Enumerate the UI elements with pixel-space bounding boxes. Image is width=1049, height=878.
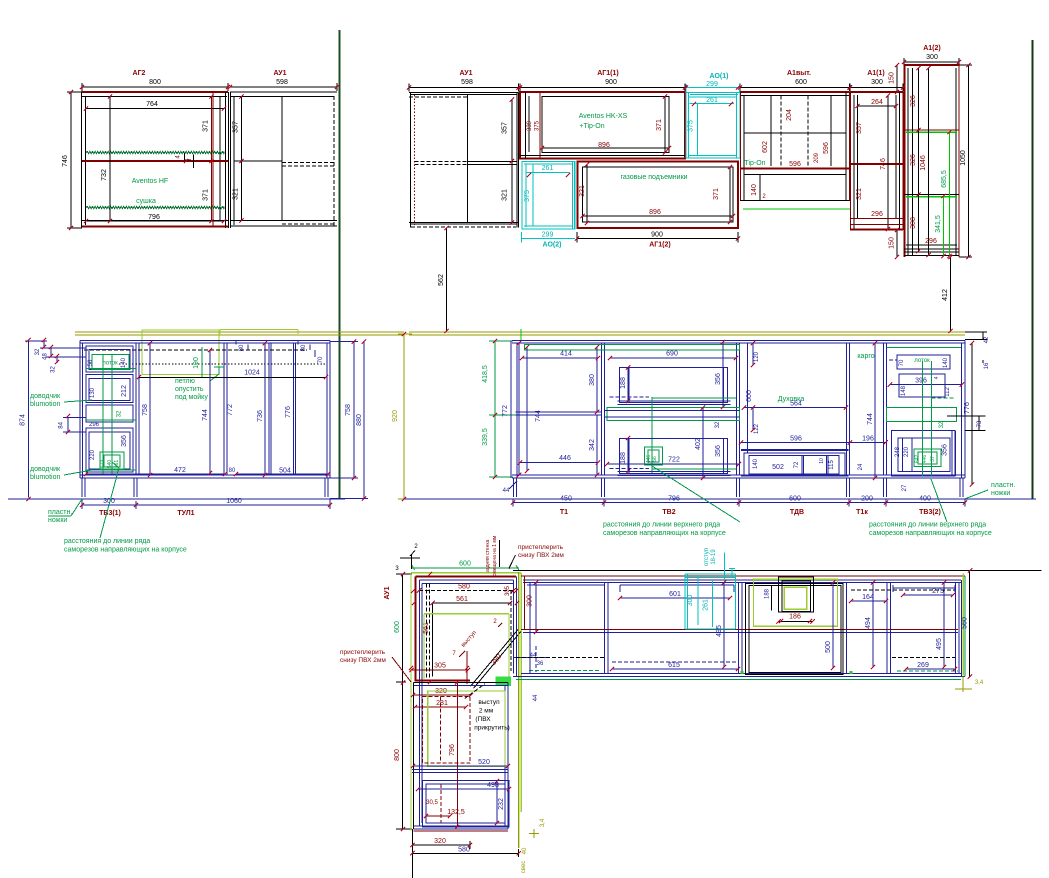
svg-text:494: 494 [865, 617, 872, 629]
svg-text:АГ2: АГ2 [133, 70, 146, 77]
svg-text:212: 212 [121, 385, 128, 397]
svg-text:186: 186 [789, 614, 801, 621]
svg-text:80: 80 [229, 468, 236, 474]
svg-text:396: 396 [915, 378, 927, 385]
svg-text:80: 80 [239, 344, 245, 351]
svg-text:А1(1): А1(1) [867, 70, 885, 77]
svg-text:495: 495 [716, 625, 723, 637]
svg-text:140: 140 [943, 357, 949, 368]
svg-text:Aventos HK-XS: Aventos HK-XS [579, 113, 628, 120]
svg-text:Tip-On: Tip-On [744, 160, 765, 167]
svg-text:732: 732 [101, 169, 108, 181]
svg-text:601: 601 [669, 591, 681, 598]
svg-text:80: 80 [301, 344, 307, 351]
svg-text:561: 561 [456, 596, 468, 603]
svg-text:42: 42 [984, 336, 990, 343]
svg-text:744: 744 [535, 410, 542, 422]
svg-text:расстояния до линии верхнего р: расстояния до линии верхнего ряда [869, 522, 986, 529]
svg-text:308: 308 [910, 217, 917, 229]
svg-text:472: 472 [174, 467, 186, 474]
svg-text:400: 400 [919, 496, 931, 503]
svg-text:296: 296 [871, 211, 883, 218]
svg-text:418,5: 418,5 [482, 365, 489, 383]
svg-text:3,4: 3,4 [975, 680, 984, 686]
svg-text:371: 371 [713, 188, 720, 200]
svg-text:339,5: 339,5 [482, 428, 489, 446]
svg-text:164: 164 [862, 594, 874, 601]
svg-text:920: 920 [392, 410, 399, 422]
svg-text:900: 900 [651, 232, 663, 239]
svg-text:пристеплерить: пристеплерить [518, 544, 564, 551]
svg-text:АО(2): АО(2) [543, 242, 562, 249]
svg-text:пристеплерить: пристеплерить [340, 649, 386, 656]
svg-text:пластн.: пластн. [991, 482, 1015, 489]
svg-text:2: 2 [762, 194, 766, 200]
svg-text:140: 140 [753, 458, 759, 469]
svg-text:261: 261 [542, 165, 554, 172]
svg-text:задняя стенка: задняя стенка [485, 539, 491, 572]
svg-text:874: 874 [20, 414, 27, 426]
svg-text:188: 188 [764, 588, 770, 599]
svg-text:414: 414 [560, 351, 572, 358]
svg-text:2: 2 [414, 544, 418, 550]
svg-text:сушка: сушка [136, 198, 156, 205]
svg-text:16: 16 [984, 362, 990, 369]
svg-text:44: 44 [503, 488, 510, 494]
svg-text:газовые подъемники: газовые подъемники [620, 174, 687, 181]
svg-text:642: 642 [915, 455, 921, 464]
svg-text:27: 27 [902, 484, 908, 491]
svg-text:карго: карго [857, 353, 874, 360]
svg-text:1024: 1024 [244, 370, 260, 377]
svg-text:АГ1(1): АГ1(1) [597, 70, 618, 77]
svg-text:188: 188 [620, 377, 627, 389]
svg-text:130: 130 [90, 387, 96, 398]
svg-text:150: 150 [889, 237, 896, 249]
svg-text:150: 150 [889, 72, 896, 84]
svg-text:32: 32 [117, 410, 123, 417]
svg-text:281: 281 [436, 700, 448, 707]
svg-text:357: 357 [233, 121, 240, 133]
svg-text:доводчик: доводчик [30, 466, 61, 473]
svg-text:261: 261 [706, 97, 718, 104]
svg-text:375: 375 [535, 120, 541, 131]
svg-text:758: 758 [345, 404, 352, 416]
svg-text:32: 32 [35, 348, 41, 355]
svg-text:796: 796 [148, 214, 160, 221]
svg-text:296: 296 [925, 238, 937, 245]
svg-text:4: 4 [934, 376, 940, 379]
svg-text:446: 446 [559, 455, 571, 462]
svg-text:356: 356 [942, 444, 949, 456]
svg-text:615: 615 [668, 662, 680, 669]
svg-text:140: 140 [751, 184, 758, 196]
svg-text:800: 800 [394, 749, 401, 761]
svg-text:расстояния до линии верхнего р: расстояния до линии верхнего ряда [603, 522, 720, 529]
svg-text:796: 796 [668, 496, 680, 503]
svg-text:Т1: Т1 [560, 509, 568, 516]
svg-text:220: 220 [904, 446, 910, 457]
svg-text:70: 70 [899, 359, 905, 366]
svg-text:600: 600 [459, 561, 471, 568]
svg-text:746: 746 [880, 158, 887, 170]
svg-text:+Tip-On: +Tip-On [579, 123, 604, 130]
svg-text:232: 232 [498, 798, 505, 810]
svg-text:blumotion: blumotion [30, 474, 60, 481]
svg-text:ТВ3(2): ТВ3(2) [919, 509, 941, 516]
svg-text:685,5: 685,5 [941, 170, 948, 188]
svg-text:321: 321 [233, 188, 240, 200]
svg-text:опустить: опустить [175, 386, 204, 393]
svg-text:132,5: 132,5 [447, 809, 465, 816]
svg-text:339: 339 [527, 120, 533, 131]
svg-text:412: 412 [942, 289, 949, 301]
svg-text:пластн.: пластн. [48, 509, 72, 516]
svg-text:880: 880 [356, 414, 363, 426]
svg-text:отступ: отступ [704, 548, 710, 566]
svg-text:204: 204 [786, 109, 793, 121]
svg-text:3,4: 3,4 [540, 818, 546, 827]
svg-text:264: 264 [871, 99, 883, 106]
svg-text:600: 600 [789, 496, 801, 503]
svg-text:357: 357 [856, 122, 863, 134]
svg-text:326: 326 [910, 95, 917, 107]
svg-text:596: 596 [823, 142, 830, 154]
svg-text:АУ1: АУ1 [273, 70, 286, 77]
svg-text:300: 300 [871, 79, 883, 86]
svg-text:1050: 1050 [960, 150, 967, 166]
svg-text:прикрутить): прикрутить) [474, 725, 510, 732]
svg-text:1060: 1060 [226, 498, 242, 505]
svg-text:261: 261 [703, 599, 710, 611]
svg-text:320: 320 [434, 838, 446, 845]
svg-text:321: 321 [579, 185, 586, 197]
svg-text:расстояния до линии ряда: расстояния до линии ряда [64, 538, 150, 545]
svg-text:371: 371 [656, 119, 663, 131]
svg-text:296: 296 [89, 422, 100, 428]
svg-text:300: 300 [527, 595, 534, 607]
svg-text:600: 600 [394, 621, 401, 633]
svg-text:73: 73 [977, 420, 983, 427]
svg-text:502: 502 [772, 464, 784, 471]
svg-text:371: 371 [203, 120, 210, 132]
svg-text:140: 140 [121, 357, 127, 368]
svg-text:321: 321 [856, 188, 863, 200]
svg-text:342: 342 [589, 439, 596, 451]
svg-text:564: 564 [790, 401, 802, 408]
svg-text:доводчик: доводчик [30, 393, 61, 400]
svg-text:196: 196 [862, 436, 874, 443]
svg-text:петлю: петлю [175, 378, 195, 385]
svg-text:896: 896 [649, 209, 661, 216]
svg-text:84: 84 [59, 421, 65, 428]
svg-text:500: 500 [825, 641, 832, 653]
svg-text:АУ1: АУ1 [459, 70, 472, 77]
svg-text:776: 776 [964, 402, 971, 414]
svg-text:900: 900 [605, 79, 617, 86]
svg-text:2 мм: 2 мм [479, 708, 494, 715]
svg-text:ТУЛ1: ТУЛ1 [177, 510, 194, 517]
svg-text:744: 744 [867, 413, 874, 425]
svg-text:70: 70 [318, 356, 324, 363]
svg-text:356: 356 [715, 445, 722, 457]
svg-text:1046: 1046 [920, 155, 927, 171]
svg-text:7: 7 [452, 651, 456, 657]
svg-text:357: 357 [502, 122, 509, 134]
svg-text:598: 598 [461, 79, 473, 86]
svg-text:ножки: ножки [48, 517, 67, 524]
svg-text:375: 375 [688, 120, 695, 132]
svg-text:ножки: ножки [991, 490, 1010, 497]
svg-text:326: 326 [910, 154, 917, 166]
svg-text:АУ1: АУ1 [384, 586, 391, 599]
svg-text:300: 300 [687, 594, 694, 606]
svg-text:ТВ2: ТВ2 [662, 509, 675, 516]
svg-text:снизу ПВХ 2мм: снизу ПВХ 2мм [518, 552, 564, 559]
svg-text:772: 772 [227, 404, 234, 416]
svg-text:796: 796 [449, 744, 456, 756]
svg-text:300: 300 [926, 54, 938, 61]
svg-text:24: 24 [858, 463, 864, 470]
svg-text:саморезов направляющих на корп: саморезов направляющих на корпусе [64, 547, 187, 554]
svg-text:56: 56 [88, 359, 94, 366]
svg-text:blumotion: blumotion [30, 401, 60, 408]
svg-text:772: 772 [502, 405, 509, 417]
svg-text:18-19: 18-19 [711, 549, 717, 565]
svg-text:30,5: 30,5 [426, 800, 438, 806]
svg-text:600: 600 [795, 79, 807, 86]
svg-text:209: 209 [814, 152, 820, 163]
svg-text:598: 598 [276, 79, 288, 86]
svg-text:115: 115 [829, 460, 835, 470]
svg-text:602: 602 [762, 141, 769, 153]
svg-text:596: 596 [789, 161, 801, 168]
svg-text:305: 305 [434, 663, 446, 670]
svg-text:32: 32 [51, 366, 57, 373]
svg-text:305: 305 [505, 585, 511, 596]
svg-text:299: 299 [706, 81, 718, 88]
svg-text:375: 375 [524, 190, 531, 202]
svg-text:56: 56 [652, 456, 658, 462]
svg-text:40: 40 [522, 847, 528, 854]
svg-text:снизу ПВХ 2мм: снизу ПВХ 2мм [340, 657, 386, 664]
svg-text:722: 722 [668, 457, 680, 464]
svg-text:саморезов направляющих на корп: саморезов направляющих на корпусе [603, 530, 726, 537]
svg-text:560: 560 [962, 617, 969, 629]
svg-text:2: 2 [493, 619, 497, 625]
svg-text:520: 520 [478, 759, 490, 766]
svg-text:562: 562 [438, 274, 445, 286]
svg-text:356: 356 [121, 435, 128, 447]
svg-text:495: 495 [936, 638, 943, 650]
svg-text:44: 44 [533, 694, 539, 701]
svg-text:746: 746 [62, 155, 69, 167]
svg-text:148: 148 [901, 385, 907, 396]
svg-text:выступ: выступ [460, 630, 478, 649]
svg-text:32: 32 [939, 421, 945, 428]
svg-text:188: 188 [620, 452, 627, 464]
svg-text:402: 402 [695, 438, 702, 450]
svg-text:ТВ3(1): ТВ3(1) [99, 510, 121, 517]
svg-text:смещена на 1 мм: смещена на 1 мм [492, 535, 498, 576]
svg-text:248: 248 [895, 446, 901, 457]
svg-text:112: 112 [945, 387, 951, 397]
svg-text:596: 596 [790, 436, 802, 443]
svg-text:220: 220 [90, 449, 96, 460]
svg-text:299: 299 [542, 232, 554, 239]
svg-text:896: 896 [598, 142, 610, 149]
svg-text:под мойку: под мойку [175, 393, 208, 401]
svg-text:758: 758 [142, 404, 149, 416]
svg-text:764: 764 [146, 101, 158, 108]
svg-text:ТДВ: ТДВ [790, 509, 804, 516]
svg-text:380: 380 [589, 374, 596, 386]
svg-text:10: 10 [819, 458, 825, 464]
svg-text:321: 321 [502, 189, 509, 201]
svg-text:Т1к: Т1к [856, 509, 868, 516]
svg-text:3: 3 [395, 566, 399, 572]
svg-text:200: 200 [861, 496, 873, 503]
svg-text:580: 580 [458, 584, 470, 591]
svg-text:(ПВХ: (ПВХ [475, 716, 491, 723]
svg-text:лоток: лоток [102, 361, 118, 367]
svg-text:744: 744 [202, 409, 209, 421]
svg-text:Aventos HF: Aventos HF [132, 178, 168, 185]
svg-text:32: 32 [715, 421, 721, 428]
svg-text:800: 800 [149, 79, 161, 86]
svg-text:4: 4 [176, 155, 182, 159]
svg-text:48: 48 [43, 353, 49, 360]
svg-text:АГ1(2): АГ1(2) [649, 242, 670, 249]
svg-text:736: 736 [257, 410, 264, 422]
svg-text:А1выт.: А1выт. [787, 70, 811, 77]
svg-text:356: 356 [715, 373, 722, 385]
svg-text:АО(1): АО(1) [710, 73, 729, 80]
svg-text:275: 275 [932, 588, 944, 595]
svg-text:690: 690 [666, 351, 678, 358]
svg-text:190: 190 [193, 357, 200, 369]
svg-text:саморезов направляющих на корп: саморезов направляющих на корпусе [869, 530, 992, 537]
svg-text:36: 36 [537, 661, 544, 667]
svg-text:504: 504 [279, 468, 291, 475]
svg-text:269: 269 [917, 662, 929, 669]
svg-text:371: 371 [203, 189, 210, 201]
svg-text:341,5: 341,5 [935, 215, 942, 233]
svg-text:600: 600 [746, 390, 753, 402]
svg-text:776: 776 [285, 406, 292, 418]
svg-text:свес: свес [521, 861, 527, 873]
svg-text:120: 120 [754, 351, 760, 362]
svg-text:450: 450 [560, 496, 572, 503]
svg-text:выступ: выступ [478, 699, 500, 706]
svg-text:А1(2): А1(2) [923, 45, 941, 52]
svg-text:72: 72 [794, 461, 800, 468]
